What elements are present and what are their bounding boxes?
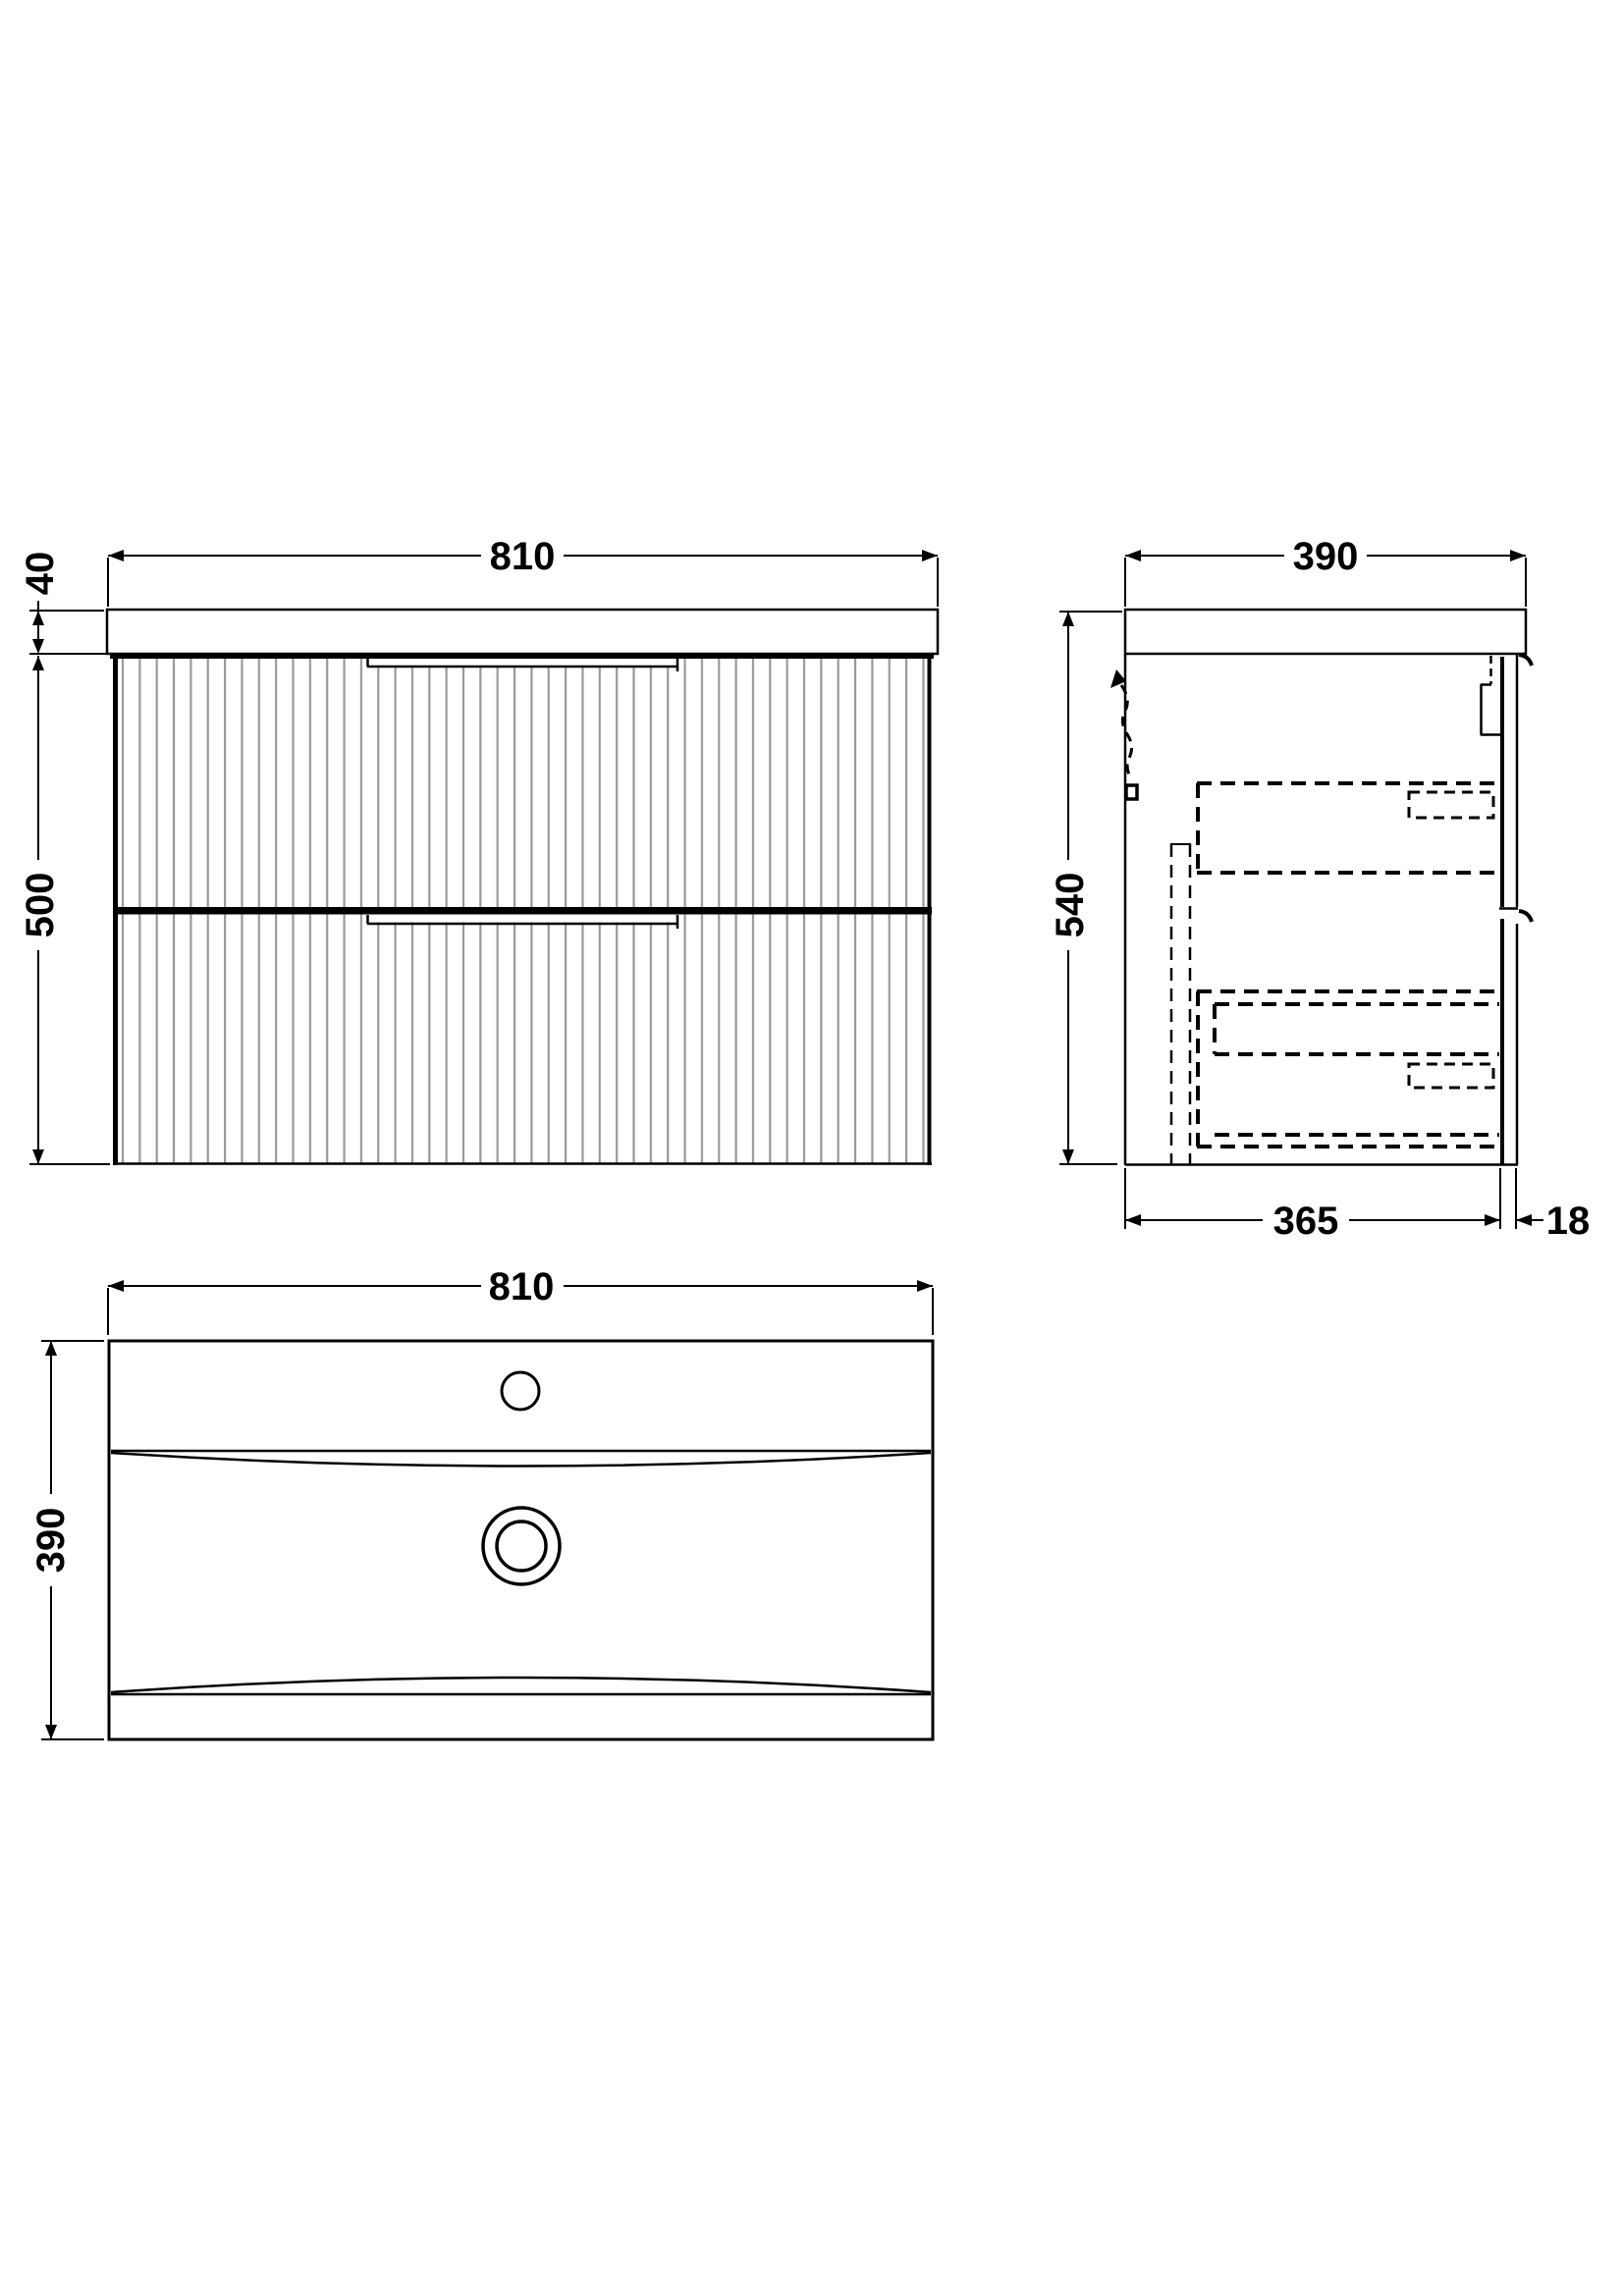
faucet-hole <box>502 1372 539 1410</box>
plan-width-label: 810 <box>489 1265 555 1308</box>
front-basin-slab <box>107 610 938 654</box>
front-basin-height-label: 40 <box>19 552 62 596</box>
front-width-label: 810 <box>490 535 556 578</box>
side-height-label: 540 <box>1049 873 1092 938</box>
front-elevation-view: 810 40 500 <box>19 535 938 1165</box>
vanity-dimension-drawing: 810 40 500 <box>0 0 1623 2296</box>
plan-depth-label: 390 <box>29 1508 73 1574</box>
drawer-divider-line <box>113 907 932 915</box>
front-cabinet-height-label: 500 <box>19 873 62 938</box>
side-panel-thickness-label: 18 <box>1546 1200 1591 1243</box>
technical-drawing-page: 810 40 500 <box>0 0 1623 2296</box>
side-depth-label: 390 <box>1293 535 1359 578</box>
side-basin-slab <box>1125 610 1526 654</box>
waste-hole <box>483 1508 560 1584</box>
side-carcass-depth-label: 365 <box>1273 1200 1339 1243</box>
